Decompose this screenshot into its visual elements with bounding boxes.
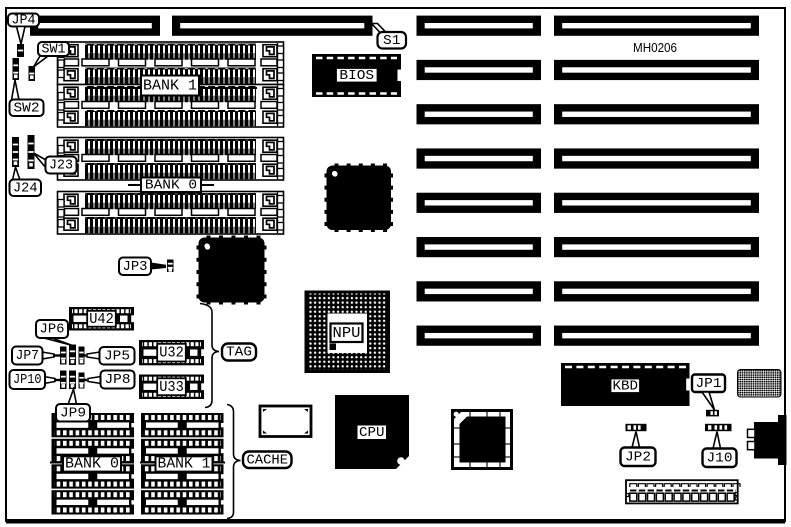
svg-text:U42: U42 [89,311,114,328]
svg-text:JP1: JP1 [696,376,722,392]
svg-text:CPU: CPU [359,425,385,441]
svg-text:J10: J10 [707,450,733,466]
svg-text:BANK 0: BANK 0 [145,177,197,193]
svg-text:BANK 1: BANK 1 [143,78,197,95]
svg-text:JP2: JP2 [625,449,651,465]
svg-text:J24: J24 [13,180,38,196]
svg-text:MH0206: MH0206 [633,41,677,55]
svg-text:JP8: JP8 [105,372,131,388]
svg-text:JP5: JP5 [104,348,130,364]
svg-text:NPU: NPU [333,325,361,342]
svg-text:JP9: JP9 [60,405,86,421]
svg-text:KBD: KBD [613,378,639,394]
svg-text:J23: J23 [49,158,73,174]
svg-text:JP7: JP7 [16,348,40,364]
svg-text:JP6: JP6 [40,322,65,338]
svg-text:BANK 0: BANK 0 [65,456,119,472]
svg-text:JP3: JP3 [123,259,148,275]
svg-text:BIOS: BIOS [339,68,374,84]
svg-text:SW1: SW1 [42,42,66,58]
svg-text:SW2: SW2 [14,100,40,116]
svg-text:U32: U32 [159,345,184,362]
svg-text:TAG: TAG [226,345,252,361]
svg-text:JP10: JP10 [13,372,42,388]
svg-text:S1: S1 [383,33,400,49]
svg-text:CACHE: CACHE [247,452,289,468]
svg-text:BANK 1: BANK 1 [158,456,211,472]
svg-text:U33: U33 [159,379,184,396]
